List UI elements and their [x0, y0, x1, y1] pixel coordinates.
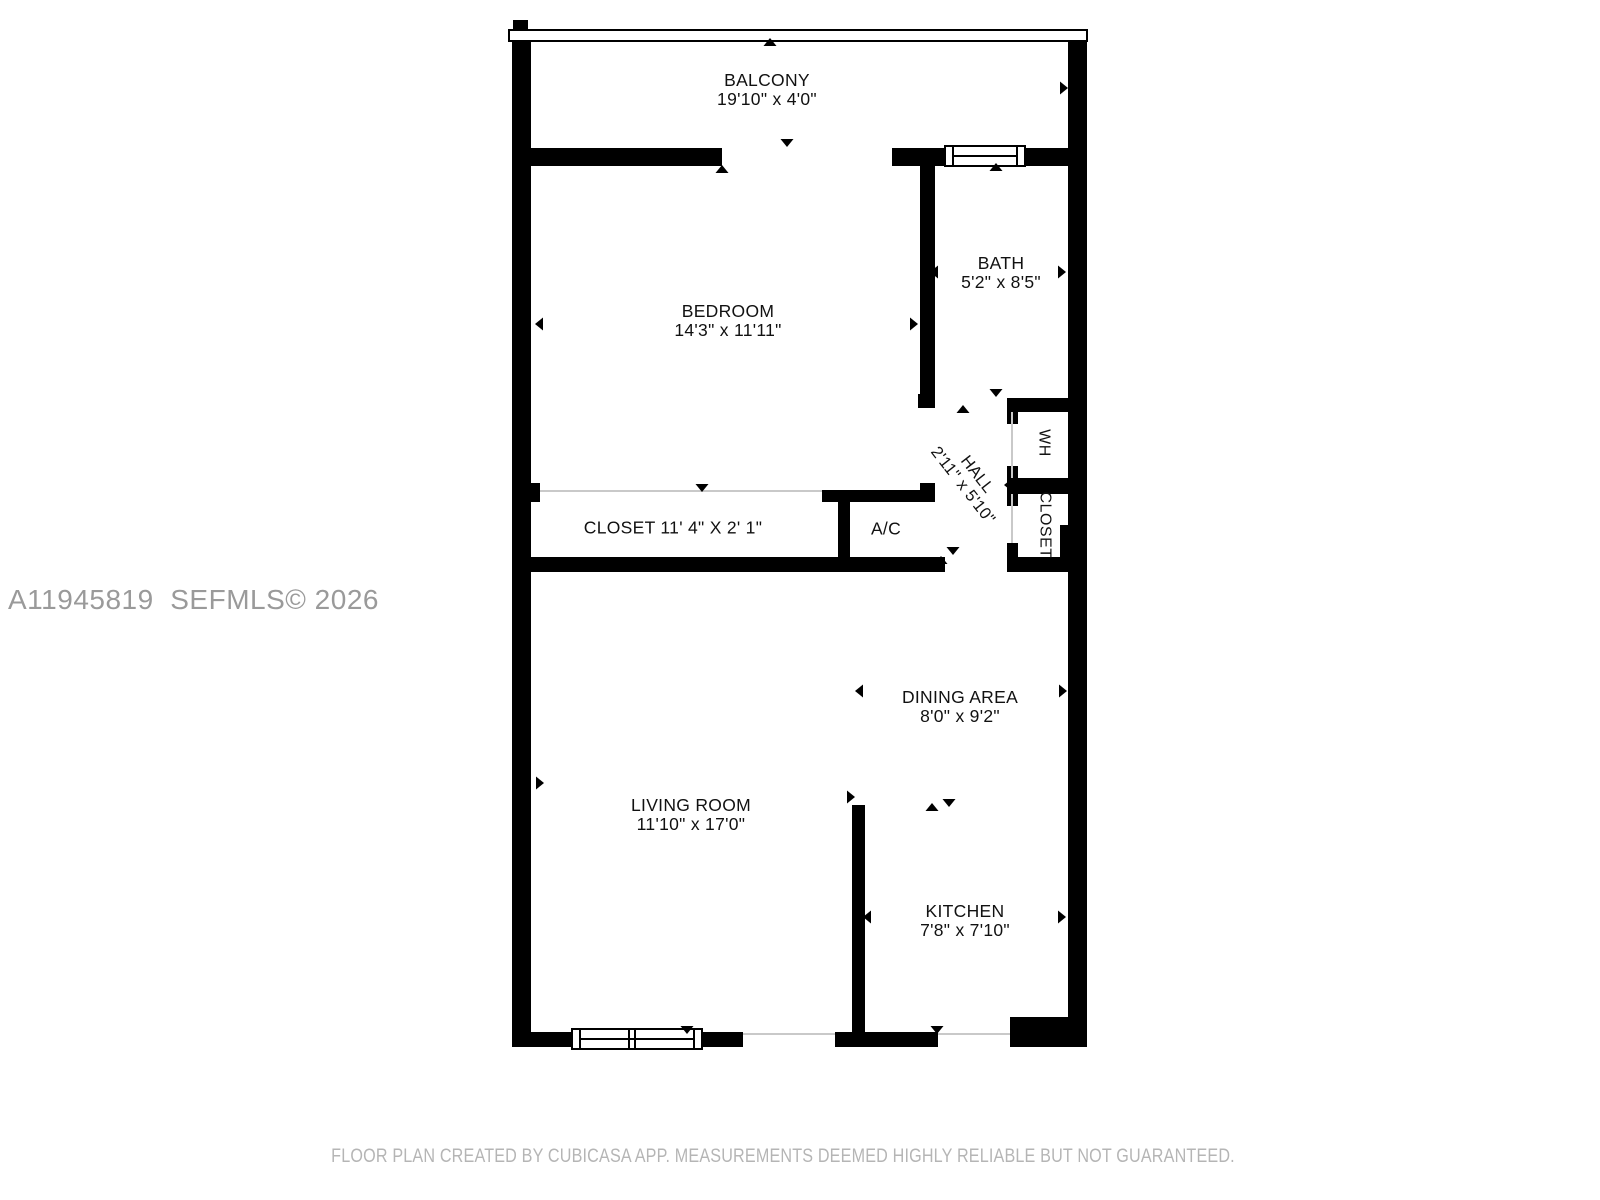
room-label-balcony: BALCONY 19'10" x 4'0"	[717, 71, 817, 109]
room-name: WH	[1035, 429, 1054, 457]
room-label-kitchen: KITCHEN 7'8" x 7'10"	[920, 902, 1010, 940]
room-dims: 8'0" x 9'2"	[902, 707, 1018, 726]
wall-segment	[835, 1032, 938, 1047]
direction-arrow	[1059, 685, 1067, 698]
room-name: LIVING ROOM	[631, 796, 751, 815]
room-name: DINING AREA	[902, 688, 1018, 707]
direction-arrow	[926, 803, 939, 811]
room-label-bath: BATH 5'2" x 8'5"	[961, 254, 1041, 292]
direction-arrow	[716, 165, 729, 173]
mls-watermark: A11945819 SEFMLS© 2026	[8, 584, 379, 616]
room-name: CLOSET 11' 4" X 2' 1"	[584, 519, 762, 538]
direction-arrow	[1060, 82, 1068, 95]
wall-segment	[892, 148, 945, 166]
room-label-hall-closet: CLOSET	[1036, 491, 1055, 558]
direction-arrow	[847, 791, 855, 804]
wall-segment	[918, 394, 935, 408]
wall-segment	[702, 1032, 743, 1047]
wall-segment	[1025, 148, 1068, 166]
wall-segment	[1060, 525, 1072, 557]
room-name: A/C	[871, 520, 901, 539]
room-label-dining: DINING AREA 8'0" x 9'2"	[902, 688, 1018, 726]
balcony-railing	[509, 30, 1087, 41]
wall-segment	[512, 483, 540, 502]
wall-segment	[920, 483, 935, 502]
room-label-water-heater: WH	[1035, 429, 1054, 457]
direction-arrow	[536, 777, 544, 790]
wall-segment	[513, 20, 528, 30]
room-label-ac: A/C	[871, 520, 901, 539]
direction-arrow	[535, 318, 543, 331]
wall-segment	[512, 148, 722, 166]
room-name: BEDROOM	[674, 302, 781, 321]
wall-segment	[512, 557, 945, 572]
room-label-bedroom-closet: CLOSET 11' 4" X 2' 1"	[584, 519, 762, 538]
room-dims: 5'2" x 8'5"	[961, 273, 1041, 292]
direction-arrow	[855, 685, 863, 698]
wall-segment	[512, 1032, 572, 1047]
floor-plan-canvas: BALCONY 19'10" x 4'0" BEDROOM 14'3" x 11…	[0, 0, 1600, 1200]
wall-segment	[1007, 543, 1018, 557]
footer-disclaimer: FLOOR PLAN CREATED BY CUBICASA APP. MEAS…	[331, 1146, 1235, 1168]
room-dims: 19'10" x 4'0"	[717, 90, 817, 109]
room-name: BALCONY	[717, 71, 817, 90]
wall-segment	[1007, 557, 1087, 572]
wall-segment	[838, 490, 850, 558]
room-name: CLOSET	[1036, 491, 1055, 558]
direction-arrow	[910, 318, 918, 331]
room-label-living: LIVING ROOM 11'10" x 17'0"	[631, 796, 751, 834]
wall-segment	[852, 805, 865, 1032]
room-dims: 11'10" x 17'0"	[631, 815, 751, 834]
wall-segment	[920, 166, 935, 394]
wall-segment	[1007, 398, 1087, 412]
direction-arrow	[1058, 911, 1066, 924]
room-dims: 7'8" x 7'10"	[920, 921, 1010, 940]
direction-arrow	[947, 547, 960, 555]
wall-segment	[1010, 1017, 1087, 1047]
room-name: KITCHEN	[920, 902, 1010, 921]
direction-arrow	[990, 389, 1003, 397]
direction-arrow	[781, 139, 794, 147]
direction-arrow	[943, 799, 956, 807]
direction-arrow	[957, 405, 970, 413]
windows	[509, 30, 1087, 1049]
direction-arrow	[1058, 266, 1066, 279]
room-dims: 14'3" x 11'11"	[674, 321, 781, 340]
room-label-bedroom: BEDROOM 14'3" x 11'11"	[674, 302, 781, 340]
room-name: BATH	[961, 254, 1041, 273]
wall-segment	[512, 40, 531, 1047]
